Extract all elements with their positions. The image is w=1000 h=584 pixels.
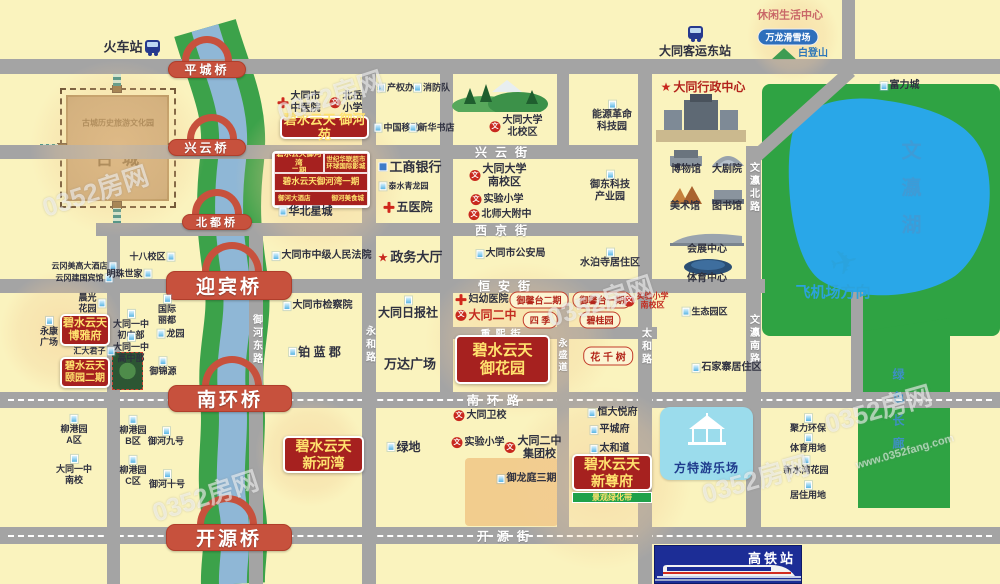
blue-marker-icon	[374, 124, 381, 132]
bridge-name: 南环桥	[197, 385, 263, 412]
blue-marker-icon	[129, 456, 136, 464]
poi-label: 体育用地	[790, 443, 826, 454]
mountain-icon	[772, 48, 796, 59]
poi-label: 御河十号	[149, 479, 185, 490]
poi-label: 大同市公安局	[486, 248, 546, 260]
map-poi: 妇幼医院	[456, 294, 509, 306]
train-station-icon	[145, 40, 160, 53]
bridge-name: 北都桥	[196, 214, 238, 230]
hospital-cross-icon	[456, 294, 467, 305]
blue-marker-icon	[108, 347, 115, 355]
blue-marker-icon	[591, 426, 598, 434]
blue-marker-icon	[404, 296, 411, 304]
property-block[interactable]: 碧水云天 颐园二期	[60, 357, 110, 388]
poi-label: 大同大学 北校区	[503, 115, 543, 139]
blue-marker-icon	[162, 427, 169, 435]
blue-marker-icon	[163, 470, 170, 478]
map-poi: 永康 广场	[40, 317, 58, 347]
school-icon: 文	[454, 410, 465, 421]
street-name: 开源街	[477, 528, 537, 545]
blue-marker-icon	[129, 416, 136, 424]
street-name: 西京街	[475, 222, 535, 239]
blue-marker-icon	[589, 409, 596, 417]
poi-label: 柳港园 A区	[60, 424, 87, 445]
poi-label: 铂 蓝 郡	[298, 345, 341, 359]
poi-label: 实验小学 南校区	[637, 292, 669, 311]
blue-marker-icon	[70, 415, 77, 423]
map-poi: 图书馆	[712, 201, 742, 213]
riverbay-phase2: 碧水云天御河湾 二期	[274, 153, 324, 173]
poi-label: 御龙庭三期	[507, 473, 557, 485]
lake-water	[789, 99, 990, 296]
bridge-label: 南环桥	[168, 385, 292, 412]
yulongting-area	[465, 458, 558, 526]
blue-marker-icon	[607, 249, 614, 257]
hospital-cross-icon	[278, 98, 289, 109]
map-poi: 太和道	[591, 443, 630, 455]
blue-marker-icon	[804, 481, 811, 489]
blue-marker-icon	[289, 348, 296, 356]
blue-marker-icon	[145, 270, 152, 278]
blue-marker-icon	[804, 414, 811, 422]
map-poi: 柳港园 C区	[119, 456, 146, 486]
road	[557, 279, 569, 527]
map-poi: 万达广场	[384, 356, 436, 371]
blue-marker-icon	[409, 124, 416, 132]
blue-marker-icon	[70, 455, 77, 463]
poi-label: 体育中心	[687, 273, 727, 285]
poi-label: 大同市 中医院	[291, 91, 321, 115]
blue-marker-icon	[99, 299, 106, 307]
poi-label: 大同市中级人民法院	[282, 250, 372, 262]
bridge-label: 开源桥	[166, 524, 292, 551]
blue-marker-icon	[273, 252, 280, 260]
poi-label: 大剧院	[712, 164, 742, 176]
blue-marker-icon	[157, 330, 164, 338]
blue-marker-icon	[414, 84, 421, 92]
school-icon: 文	[490, 122, 501, 133]
bridge-name: 开源桥	[196, 524, 262, 551]
city-map: 古城历史旅游文化园 古城 ✈ 文瀛湖 绿色长廊 碧水云天御河湾	[0, 0, 1000, 584]
blue-marker-icon	[45, 317, 52, 325]
map-poi: 工商银行	[378, 159, 441, 174]
fantawild-park[interactable]: 方特游乐场	[660, 407, 753, 480]
poi-label: 明珠世家	[106, 269, 142, 280]
poi-label: 云冈美高大酒店	[52, 261, 108, 270]
bridge-label: 平城桥	[168, 61, 246, 78]
map-poi: 御锦源	[149, 357, 176, 377]
map-poi: 文大同二中	[455, 308, 516, 322]
map-poi: 文大同大学 北校区	[490, 115, 543, 139]
map-poi: 大同市中级人民法院	[273, 250, 372, 262]
poi-label: 会展中心	[687, 244, 727, 256]
fantawild-label: 方特游乐场	[660, 459, 753, 476]
blue-marker-icon	[378, 84, 385, 92]
bridge-name: 兴云桥	[184, 139, 229, 156]
poi-label: 大同一中 高中部	[113, 342, 149, 363]
blue-marker-icon	[881, 82, 888, 90]
map-poi: 御河九号	[148, 427, 184, 447]
poi-label: 华北星城	[289, 206, 333, 219]
ski-resort-pill: 万龙滑雪场	[757, 29, 818, 46]
poi-label: 大同客运东站	[659, 44, 731, 58]
map-poi: 御龙庭三期	[498, 473, 557, 485]
riverbay-food: 御河美食城	[331, 195, 364, 202]
map-poi: 美术馆	[670, 201, 700, 213]
star-icon: ★	[661, 81, 672, 93]
map-poi: 大同一中 高中部	[113, 333, 149, 363]
street-name: 文瀛南路	[746, 314, 761, 366]
riverbay-hotel: 御河大酒店	[278, 195, 311, 202]
blue-marker-icon	[804, 434, 811, 442]
map-poi: 水泊寺居住区	[580, 249, 640, 270]
map-poi: 国际 丽都	[158, 295, 176, 325]
poi-label: 永康 广场	[40, 326, 58, 347]
map-poi: 泰水青龙园	[380, 181, 429, 190]
riverbay-phase1: 碧水云天御河湾一期	[274, 173, 368, 191]
road	[638, 59, 652, 584]
poi-label: 图书馆	[712, 201, 742, 213]
poi-label: 大同二中 集团校	[518, 435, 562, 461]
poi-label: 石家寨居住区	[702, 362, 762, 374]
map-poi: 云冈建国宾馆	[56, 273, 113, 282]
poi-label: 晨光 花园	[78, 292, 96, 313]
bus-station-icon	[688, 26, 703, 39]
map-poi: 御河十号	[149, 470, 185, 490]
poi-label: 产权办	[387, 83, 414, 94]
map-poi: 柳港园 A区	[60, 415, 87, 445]
map-poi: 休闲生活中心	[757, 10, 823, 23]
property-block[interactable]: 碧水云天 新尊府	[572, 454, 652, 491]
community-pill[interactable]: 四 季	[523, 312, 558, 329]
school-icon: 文	[469, 209, 480, 220]
poi-label: 柳港园 C区	[119, 465, 146, 486]
street-name: 太和路	[638, 328, 653, 367]
poi-label: 居住用地	[790, 490, 826, 501]
road	[851, 292, 863, 392]
map-poi: 能源革命 科技园	[592, 101, 632, 134]
poi-label: 泰水青龙园	[389, 181, 429, 190]
bank-icon	[378, 162, 387, 171]
map-poi: 华北星城	[280, 206, 333, 219]
map-poi: ★政务大厅	[378, 249, 443, 264]
blue-marker-icon	[280, 208, 287, 216]
blue-marker-icon	[387, 443, 394, 451]
map-poi: 大同一中 南校	[56, 455, 92, 485]
map-poi: 生态园区	[682, 307, 727, 318]
property-block[interactable]: 碧水云天 御花园	[455, 335, 550, 384]
blue-marker-icon	[802, 456, 809, 464]
map-poi: 文大同大学 南校区	[470, 163, 527, 189]
poi-label: 新水湾花园	[783, 465, 828, 476]
map-poi: 体育中心	[687, 273, 727, 285]
poi-label: 妇幼医院	[469, 294, 509, 306]
map-poi: 飞机场方向	[795, 284, 870, 302]
map-poi: 文北师大附中	[469, 209, 532, 221]
moat-bridge	[113, 208, 121, 224]
map-poi: 文实验小学	[452, 437, 505, 449]
poi-label: 大同二中	[468, 308, 516, 322]
blue-marker-icon	[127, 310, 134, 318]
blue-marker-icon	[163, 295, 170, 303]
map-poi: 会展中心	[687, 244, 727, 256]
hospital-cross-icon	[383, 202, 394, 213]
map-poi: 大同客运东站	[659, 44, 731, 58]
property-block[interactable]: 碧水云天 新河湾	[283, 436, 364, 473]
street-name: 南环路	[467, 392, 527, 409]
poi-label: 汇大君子	[74, 346, 106, 355]
map-poi: 柳港园 B区	[119, 416, 146, 446]
poi-label: 飞机场方向	[795, 284, 870, 302]
map-poi: 平城府	[591, 424, 630, 436]
poi-label: 恒大悦府	[598, 407, 638, 419]
poi-label: 太和道	[600, 443, 630, 455]
map-poi: 产权办	[378, 83, 414, 94]
road	[557, 59, 569, 147]
riverbay-mall: 世纪华联超市 环球国际影城	[324, 153, 368, 173]
map-poi: 御东科技 产业园	[590, 171, 630, 204]
map-poi: 居住用地	[790, 481, 826, 501]
poi-label: 休闲生活中心	[757, 10, 823, 23]
property-block[interactable]: 碧水云天 博雅府	[60, 314, 110, 346]
bridge-name: 迎宾桥	[196, 272, 262, 299]
community-pill[interactable]: 碧桂园	[579, 312, 620, 329]
street-name: 御河东路	[249, 314, 264, 366]
poi-label: 国际 丽都	[158, 304, 176, 325]
poi-label: 新华书店	[418, 123, 454, 134]
road	[842, 0, 855, 60]
poi-label: 绿地	[396, 440, 420, 454]
hsr-station: 高铁站	[654, 545, 802, 584]
map-poi: 大同市检察院	[284, 300, 353, 312]
poi-label: 大同一中 南校	[56, 464, 92, 485]
poi-label: 五医院	[396, 200, 432, 214]
map-poi: 五医院	[383, 200, 432, 214]
poi-label: 万达广场	[384, 356, 436, 371]
poi-label: 御锦源	[149, 366, 176, 377]
poi-label: 御河九号	[148, 436, 184, 447]
poi-label: 十八校区	[129, 252, 165, 263]
map-poi: 大同日报社	[378, 296, 438, 319]
government-center-illustration	[654, 92, 750, 144]
map-poi: 消防队	[414, 83, 450, 94]
map-poi: 铂 蓝 郡	[289, 345, 341, 359]
poi-label: 火车站	[103, 39, 142, 54]
hills-illustration	[452, 78, 548, 112]
street-name: 永盛道	[557, 338, 570, 374]
school-icon: 文	[471, 194, 482, 205]
poi-label: 实验小学	[484, 194, 524, 206]
school-icon: 文	[330, 98, 341, 109]
blue-marker-icon	[609, 101, 616, 109]
poi-label: 大同卫校	[467, 410, 507, 422]
property-riverbay-complex[interactable]: 碧水云天御河湾 二期 世纪华联超市 环球国际影城 碧水云天御河湾一期 御河大酒店…	[272, 151, 370, 208]
map-poi: 明珠世家	[106, 269, 151, 280]
poi-label: 御东科技 产业园	[590, 180, 630, 204]
bridge-label: 迎宾桥	[166, 271, 292, 300]
poi-label: 生态园区	[691, 307, 727, 318]
map-poi: 恒大悦府	[589, 407, 638, 419]
blue-marker-icon	[477, 250, 484, 258]
poi-label: 工商银行	[389, 159, 441, 174]
map-poi: 新华书店	[409, 123, 454, 134]
school-icon: 文	[470, 171, 481, 182]
poi-label: 大同行政中心	[673, 80, 745, 94]
poi-label: 消防队	[423, 83, 450, 94]
blue-marker-icon	[127, 333, 134, 341]
star-icon: ★	[378, 251, 389, 263]
carousel-icon	[685, 413, 729, 449]
bridge-label: 兴云桥	[168, 139, 246, 156]
blue-marker-icon	[159, 357, 166, 365]
school-icon: 文	[452, 437, 463, 448]
map-poi: 新水湾花园	[783, 456, 828, 476]
map-poi: 绿地	[387, 440, 420, 454]
poi-label: 平城府	[600, 424, 630, 436]
greenbelt-strip: 景观绿化带	[572, 492, 652, 503]
poi-label: 大同大学 南校区	[483, 163, 527, 189]
city-gate-icon	[112, 85, 122, 93]
map-poi: 体育用地	[790, 434, 826, 454]
poi-label: 北师大附中	[482, 209, 532, 221]
blue-marker-icon	[607, 171, 614, 179]
bridge-label: 北都桥	[182, 214, 252, 230]
poi-label: 政务大厅	[390, 249, 442, 264]
school-icon: 文	[624, 296, 635, 307]
map-poi: 富力城	[881, 80, 920, 92]
map-poi: 博物馆	[671, 164, 701, 176]
map-poi: 文北岳 小学	[330, 91, 363, 115]
lake-name: 文瀛湖	[895, 140, 924, 251]
poi-label: 聚力环保	[790, 423, 826, 434]
blue-marker-icon	[693, 364, 700, 372]
community-pill[interactable]: 花 千 树	[583, 347, 633, 366]
poi-label: 美术馆	[670, 201, 700, 213]
map-poi: 大剧院	[712, 164, 742, 176]
map-poi: 大同市 中医院	[278, 91, 321, 115]
poi-label: 能源革命 科技园	[592, 110, 632, 134]
map-poi: ★大同行政中心	[661, 80, 746, 94]
map-poi: 白登山	[772, 48, 828, 60]
map-poi: 晨光 花园	[78, 292, 105, 313]
map-poi: 聚力环保	[790, 414, 826, 434]
blue-marker-icon	[682, 308, 689, 316]
blue-marker-icon	[168, 253, 175, 261]
blue-marker-icon	[498, 475, 505, 483]
map-poi: 文大同二中 集团校	[505, 435, 562, 461]
ancient-city-subtitle: 古城历史旅游文化园	[82, 118, 154, 129]
school-icon: 文	[505, 443, 516, 454]
community-pill[interactable]: 御馨台二期	[509, 292, 568, 309]
bridge-name: 平城桥	[184, 61, 229, 78]
school-icon: 文	[455, 310, 466, 321]
poi-label: 柳港园 B区	[119, 425, 146, 446]
poi-label: 水泊寺居住区	[580, 258, 640, 270]
poi-label: 龙园	[166, 329, 184, 340]
property-block[interactable]: 碧水云天 御河苑	[280, 116, 369, 139]
street-name: 文瀛北路	[746, 162, 761, 214]
map-poi: 火车站	[103, 39, 142, 54]
map-poi: 龙园	[157, 329, 184, 340]
poi-label: 大同市检察院	[293, 300, 353, 312]
poi-label: 云冈建国宾馆	[56, 273, 104, 282]
blue-marker-icon	[591, 445, 598, 453]
poi-label: 白登山	[798, 48, 828, 60]
poi-label: 博物馆	[671, 164, 701, 176]
blue-marker-icon	[284, 302, 291, 310]
poi-label: 实验小学	[465, 437, 505, 449]
map-poi: 文大同卫校	[454, 410, 507, 422]
street-name: 兴云街	[475, 144, 535, 161]
train-illustration	[655, 560, 801, 582]
green-corridor-label: 绿色长廊	[890, 368, 907, 460]
map-poi: 汇大君子	[74, 346, 115, 355]
map-poi: 十八校区	[129, 252, 174, 263]
map-poi: 文实验小学 南校区	[624, 292, 669, 311]
poi-label: 北岳 小学	[343, 91, 363, 115]
street-name: 永和路	[362, 326, 377, 365]
map-poi: 大同市公安局	[477, 248, 546, 260]
map-poi: 文实验小学	[471, 194, 524, 206]
poi-label: 富力城	[890, 80, 920, 92]
poi-label: 大同日报社	[378, 305, 438, 319]
blue-marker-icon	[380, 182, 387, 190]
map-poi: 石家寨居住区	[693, 362, 762, 374]
